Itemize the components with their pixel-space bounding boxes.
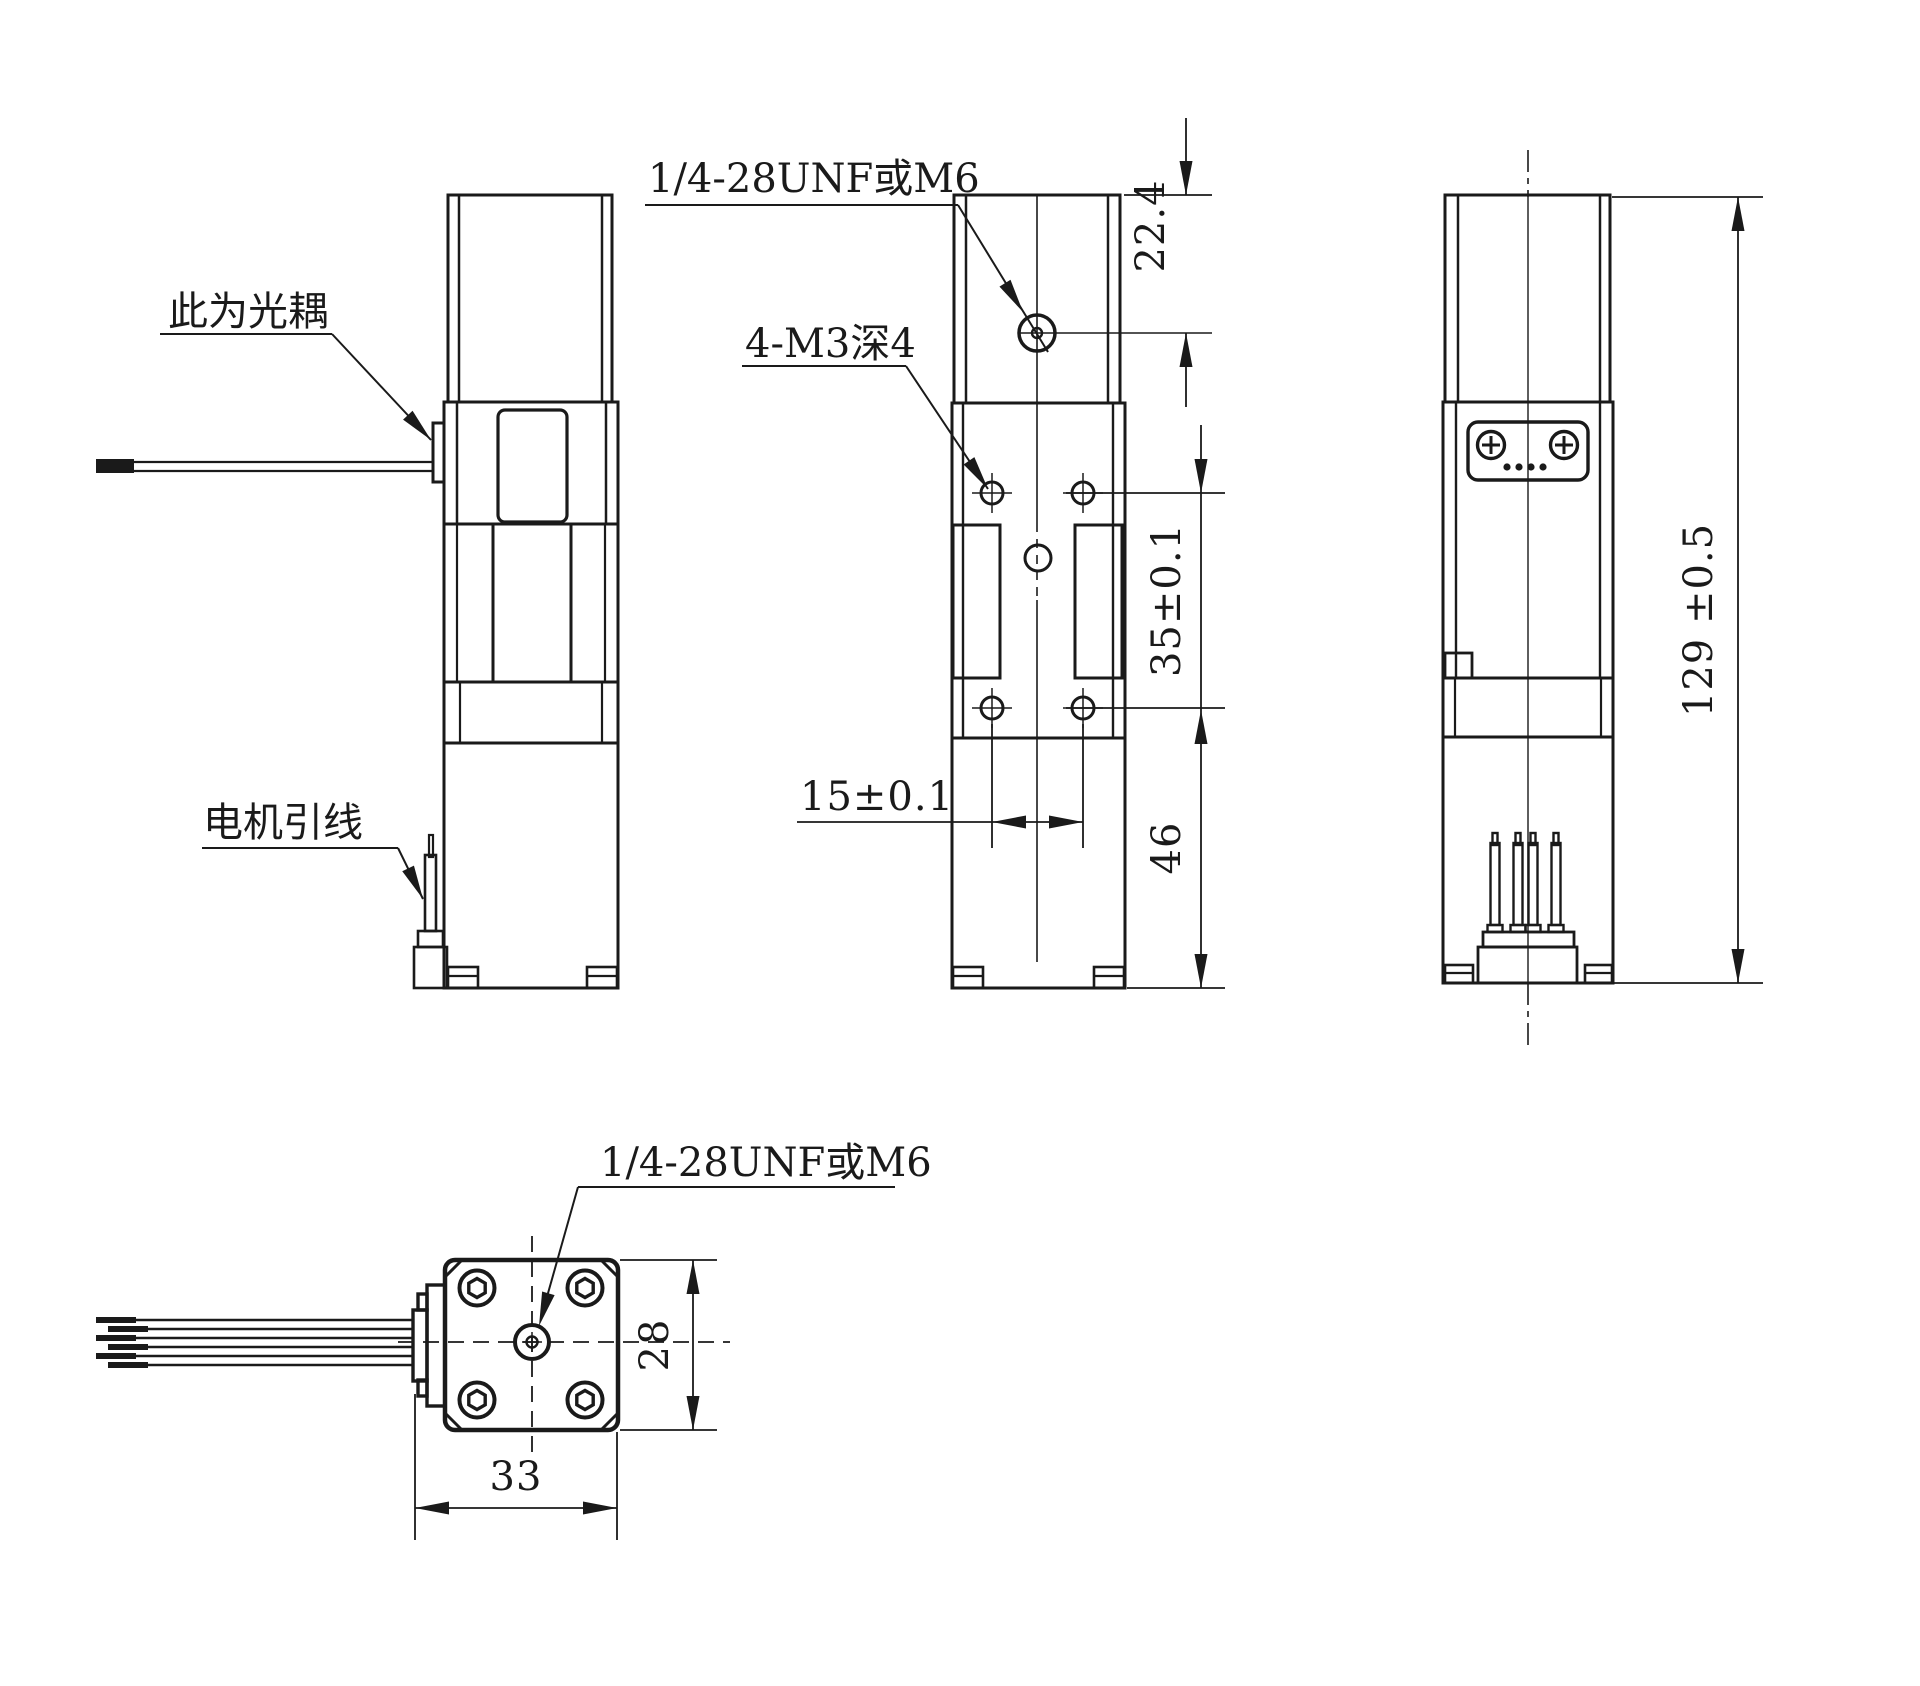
m3-holes-label: 4-M3深4: [745, 321, 916, 367]
plunger-rod: [448, 195, 612, 402]
dim-22-4: 22.4: [1128, 179, 1174, 272]
motor-boss: [413, 1285, 445, 1406]
side-view: 此为光耦 电机引线: [96, 195, 618, 988]
thread-spec-label-top: 1/4-28UNF或M6: [648, 156, 980, 202]
dim-28: 28: [632, 1319, 678, 1372]
mounting-hole-top-left: [972, 473, 1012, 513]
corner-screw-top-left: [460, 1271, 495, 1306]
corner-screw-top-right: [568, 1271, 603, 1306]
connector-pins: [1488, 833, 1564, 932]
engineering-drawing: 此为光耦 电机引线: [0, 0, 1920, 1686]
corner-screw-bottom-left: [460, 1383, 495, 1418]
sensor-window: [498, 410, 567, 522]
m3-annotation: [742, 366, 993, 493]
motor-leads-label: 电机引线: [203, 800, 363, 846]
cutout-right: [1075, 525, 1122, 678]
motor-lead-pin: [414, 835, 447, 988]
dim-35-46-lines: [1066, 425, 1225, 988]
right-side-view: 129 ±0.5: [1443, 150, 1763, 1048]
optocoupler-annotation: [160, 334, 436, 444]
cutout-left: [953, 525, 1000, 678]
dim-33: 33: [490, 1454, 543, 1500]
panel-screw-left: [1478, 432, 1505, 459]
panel-led-dots: [1503, 463, 1546, 470]
panel-screw-right: [1551, 432, 1578, 459]
optocoupler-wire: [96, 459, 433, 473]
front-view: 22.4 35±0.1 46 15±0.1 1/4-28UNF: [645, 118, 1225, 988]
mounting-feet: [448, 967, 617, 988]
corner-screw-bottom-right: [568, 1383, 603, 1418]
optocoupler-notch: [1445, 653, 1472, 678]
motor-leads-annotation: [202, 848, 429, 902]
center-pilot-hole: [1025, 545, 1051, 571]
dim-35: 35±0.1: [1144, 523, 1190, 677]
bottom-view: 1/4-28UNF或M6 28 33: [96, 1140, 932, 1540]
optocoupler-tab: [433, 423, 444, 482]
dim-129: 129 ±0.5: [1676, 523, 1722, 717]
center-thread-hole: [515, 1325, 549, 1359]
dim-15: 15±0.1: [800, 774, 954, 820]
lead-wires: [96, 1317, 413, 1368]
mounting-hole-bottom-left: [972, 688, 1012, 728]
thread-hole: [1019, 315, 1212, 351]
thread-spec-label-bottom: 1/4-28UNF或M6: [600, 1140, 932, 1186]
dim-46: 46: [1144, 822, 1190, 875]
mounting-feet-front: [953, 967, 1124, 988]
optocoupler-label: 此为光耦: [168, 289, 328, 335]
dim-129-lines: [1578, 197, 1763, 983]
